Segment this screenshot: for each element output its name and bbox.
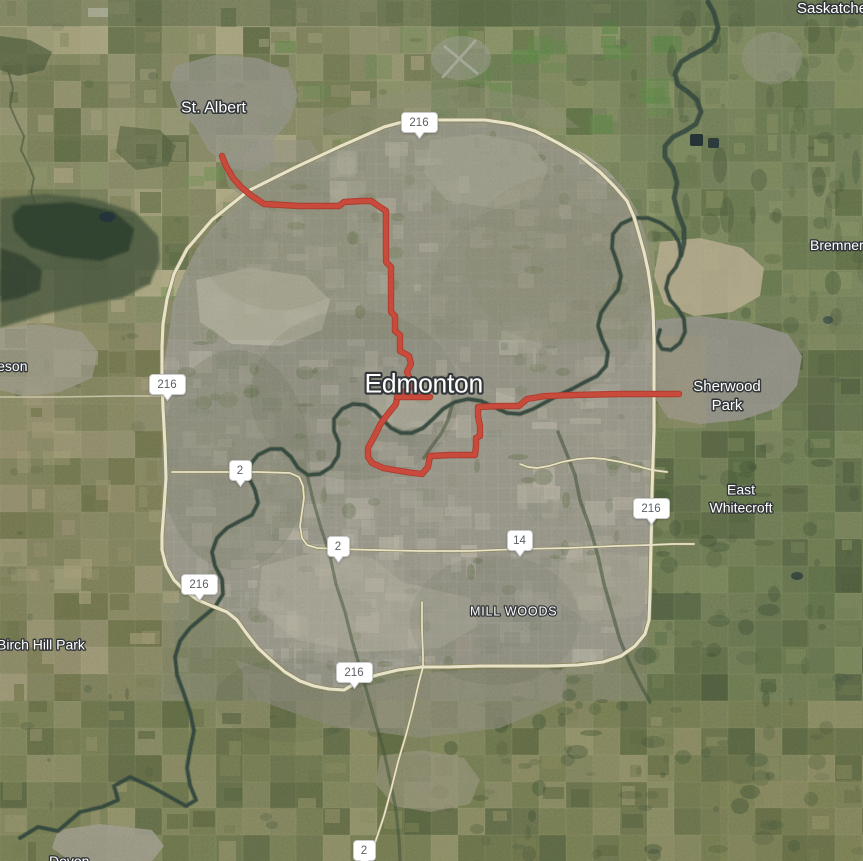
svg-text:Saskatchewan: Saskatchewan [797, 0, 863, 17]
svg-text:East: East [727, 482, 755, 498]
svg-text:Bremner: Bremner [810, 237, 863, 253]
svg-text:Sherwood: Sherwood [693, 378, 761, 395]
svg-text:Birch Hill Park: Birch Hill Park [0, 637, 86, 653]
svg-text:Whitecroft: Whitecroft [709, 500, 772, 516]
svg-text:Park: Park [712, 397, 743, 414]
svg-text:Acheson: Acheson [0, 358, 27, 374]
svg-text:Edmonton: Edmonton [365, 369, 483, 399]
svg-text:MILL WOODS: MILL WOODS [470, 605, 557, 619]
svg-text:St. Albert: St. Albert [181, 100, 246, 117]
svg-text:Devon: Devon [49, 853, 89, 861]
